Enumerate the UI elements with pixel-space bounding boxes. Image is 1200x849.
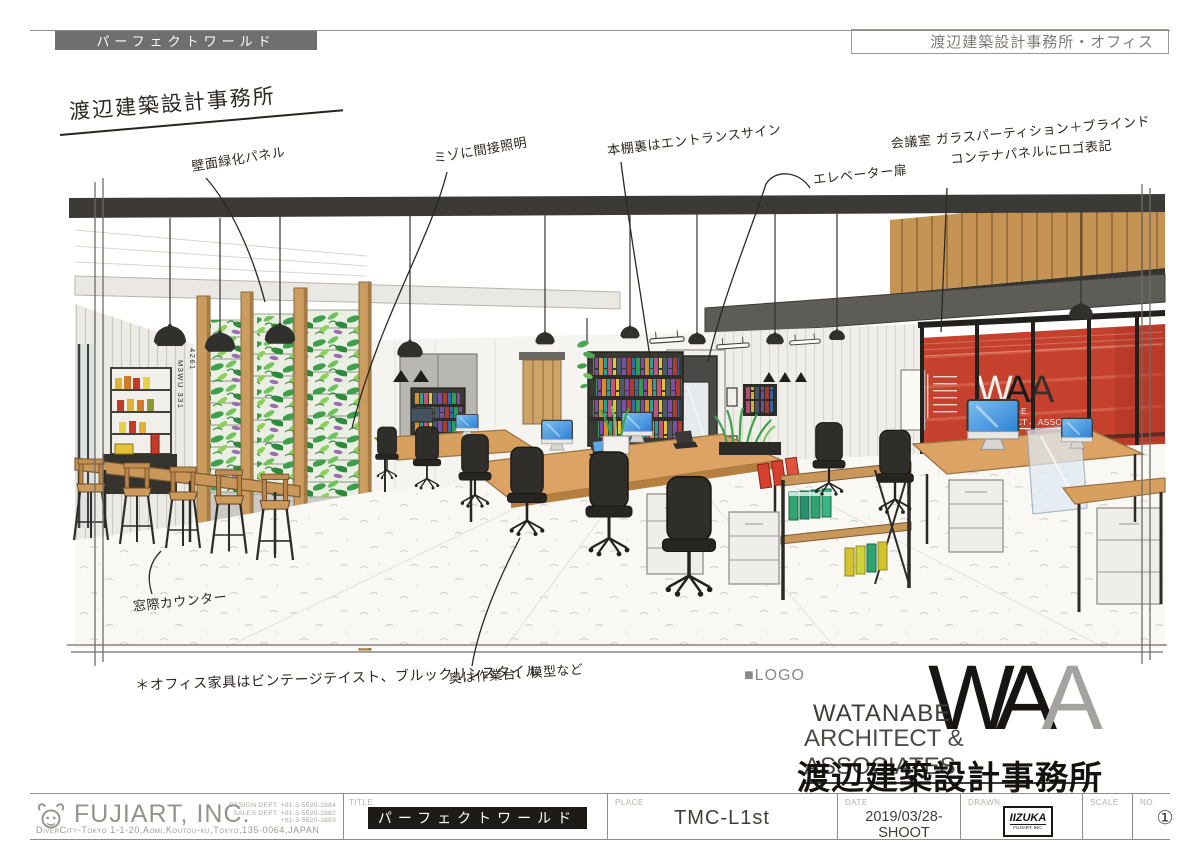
stamp-company: FUJIART, INC. [1013,825,1042,831]
divider [1082,794,1083,839]
white-beam [75,276,620,309]
scale-label: SCALE [1090,798,1119,807]
design-dept: DESIGN DEPT. +81-3-5520-1884 [214,802,336,810]
annotation-furniture-note: ＊オフィス家具はビンテージテイスト、ブルックリンスタイル [135,661,540,695]
sales-dept: SALES DEPT. +81-3-5520-1882 [214,810,336,818]
company-address: DiverCity-Tokyo 1-1-20,Aomi,Koutou-ku,To… [36,825,319,835]
container-code-left: M3WU 331 [176,360,185,410]
drawn-label: DRAWN [968,798,1000,807]
date-value: 2019/03/28- SHOOT [842,809,966,841]
cubby-shelf [743,384,777,416]
presentation-board: パーフェクトワールド 渡辺建築設計事務所・オフィス 渡辺建築設計事務所 [0,0,1200,849]
ceiling-joists [75,230,367,276]
waa-name-line1: WATANABE [813,700,951,728]
title-block: FUJIART, INC. DESIGN DEPT. +81-3-5520-18… [30,793,1170,840]
annotation-meeting-room: 会議室 ガラスパーティション＋ブラインド コンテナパネルにロゴ表記 [890,110,1153,173]
sheet-title-box: 渡辺建築設計事務所・オフィス [851,29,1169,54]
title-value-bar: パーフェクトワールド [368,807,587,829]
company-contacts: DESIGN DEPT. +81-3-5520-1884 SALES DEPT.… [214,802,336,825]
no-value: ① [1132,807,1198,830]
drawn-stamp: IIZUKA FUJIART, INC. [1003,806,1053,837]
planter-box [719,442,781,455]
project-title-bar: パーフェクトワールド [55,31,317,50]
annotation-bookshelf: 本棚裏はエントランスサイン [606,119,782,159]
divider [837,794,838,839]
annotation-groove-light: ミゾに間接照明 [432,132,528,167]
title-label: TITLE [349,798,373,807]
annotation-green-wall: 壁面緑化パネル [190,141,286,175]
entry-door [519,352,565,424]
stamp-name: IIZUKA [1010,813,1047,825]
divider [343,794,344,839]
no-label: NO. [1140,798,1156,807]
office-sketch: M3WU 331 4261 W A [75,192,1165,662]
place-value: TMC-L1st [607,807,837,830]
container-code-right: 4261 [188,348,197,371]
date-label: DATE [845,798,868,807]
waa-name-jp: 渡辺建築設計事務所 [797,751,1103,799]
logo-placeholder: ■LOGO [744,667,805,685]
phone-extra: +81-3-5520-1883 [214,817,336,825]
place-label: PLACE [615,798,644,807]
